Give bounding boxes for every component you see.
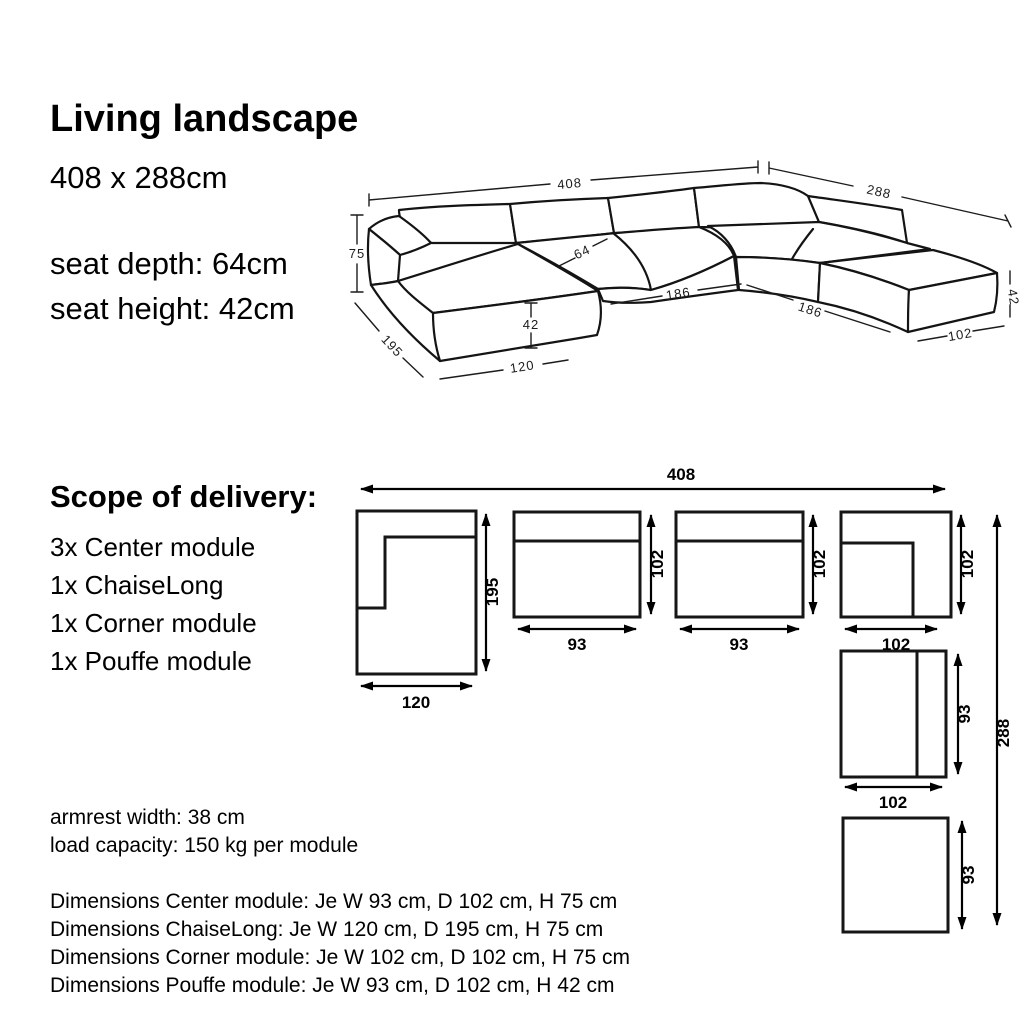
dim-chaise-width-label: 120 [509, 357, 536, 376]
dim-total-width-label: 408 [557, 175, 583, 192]
dimensions-chaiselong-note: Dimensions ChaiseLong: Je W 120 cm, D 19… [50, 918, 603, 942]
plan-pouffe-module [843, 818, 948, 932]
plan-chaiselong [357, 511, 476, 674]
plan-corner-inner [841, 543, 913, 617]
plan-corner-module [841, 512, 951, 617]
scope-item-chaiselong: 1x ChaiseLong [50, 570, 223, 601]
spec-sheet: { "header": { "title": "Living landscape… [0, 0, 1024, 1024]
plan-label-102-c1: 102 [648, 550, 667, 578]
plan-label-93-c2: 93 [730, 635, 749, 654]
scope-item-corner: 1x Corner module [50, 608, 257, 639]
overall-size: 408 x 288cm [50, 160, 228, 196]
backrest-cushion-corner [694, 183, 819, 228]
plan-label-408: 408 [667, 465, 695, 484]
scope-item-center: 3x Center module [50, 532, 255, 563]
plan-center-module-3 [841, 651, 946, 777]
dim-chaise-depth-label: 195 [378, 332, 406, 360]
plan-label-93-c3: 93 [955, 705, 974, 724]
plan-chaiselong-inner [357, 537, 476, 608]
dimensions-center-note: Dimensions Center module: Je W 93 cm, D … [50, 890, 617, 914]
scope-item-pouffe: 1x Pouffe module [50, 646, 252, 677]
dim-line-120 [440, 360, 568, 379]
dim-pouffe-height-label: 42 [1005, 288, 1023, 307]
dim-back-height-label: 75 [349, 246, 365, 261]
dim-total-depth-label: 288 [865, 182, 892, 202]
plan-label-102-c3: 102 [879, 793, 907, 812]
page-title: Living landscape [50, 98, 358, 141]
plan-label-93-c1: 93 [568, 635, 587, 654]
plan-label-120: 120 [402, 693, 430, 712]
dimensions-pouffe-note: Dimensions Pouffe module: Je W 93 cm, D … [50, 974, 615, 998]
perspective-drawing: 408 288 75 195 120 42 64 186 186 42 102 [345, 140, 1024, 395]
plan-center-module-1 [514, 512, 640, 617]
load-capacity-note: load capacity: 150 kg per module [50, 834, 358, 858]
plan-label-102-corner-v: 102 [958, 550, 977, 578]
plan-label-102-corner-h: 102 [882, 635, 910, 654]
plan-label-195: 195 [483, 578, 502, 606]
dim-inner-width-label: 186 [665, 284, 692, 303]
armrest-width-note: armrest width: 38 cm [50, 806, 245, 830]
plan-label-93-pouffe: 93 [959, 866, 978, 885]
dim-pouffe-width-label: 102 [947, 325, 974, 344]
backrest-cushion-3 [608, 188, 699, 233]
scope-title: Scope of delivery: [50, 479, 317, 515]
dimensions-corner-note: Dimensions Corner module: Je W 102 cm, D… [50, 946, 630, 970]
seat-depth-note: seat depth: 64cm [50, 246, 288, 282]
seat-height-note: seat height: 42cm [50, 291, 295, 327]
dim-seat-height-label: 42 [523, 317, 539, 332]
plan-label-288: 288 [994, 719, 1013, 747]
plan-center-module-2 [676, 512, 803, 617]
plan-drawing: 408 195 120 102 93 102 93 102 102 93 102… [345, 460, 1024, 960]
plan-label-102-c2: 102 [810, 550, 829, 578]
